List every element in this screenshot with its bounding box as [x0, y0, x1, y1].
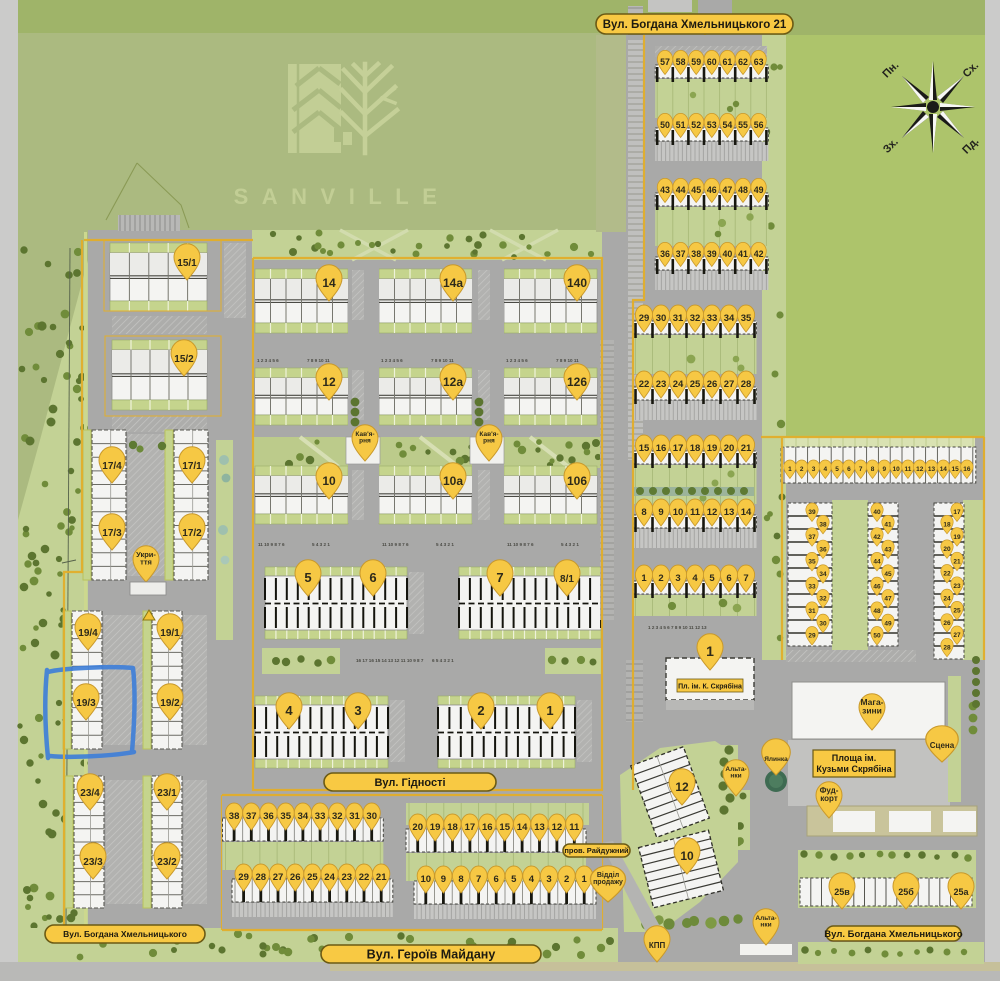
svg-text:51: 51: [676, 120, 686, 130]
svg-text:25: 25: [690, 379, 701, 390]
svg-text:46: 46: [873, 583, 881, 590]
svg-text:Вул. Богдана Хмельницького: Вул. Богдана Хмельницького: [824, 929, 963, 940]
svg-text:19: 19: [953, 534, 961, 541]
svg-text:36: 36: [660, 249, 670, 259]
svg-text:12: 12: [675, 780, 689, 794]
svg-text:140: 140: [567, 276, 587, 290]
svg-text:20: 20: [724, 443, 735, 454]
svg-text:37: 37: [246, 811, 257, 822]
svg-text:16 17 16 15 14 13 12 11 10 9 8: 16 17 16 15 14 13 12 11 10 9 8 7: [356, 658, 424, 663]
svg-text:23/3: 23/3: [83, 857, 103, 868]
svg-text:1 2 3 4 5 6: 1 2 3 4 5 6: [257, 358, 279, 363]
svg-text:14a: 14a: [443, 276, 463, 290]
svg-text:7: 7: [743, 573, 748, 584]
svg-text:18: 18: [447, 822, 458, 833]
svg-text:32: 32: [332, 811, 343, 822]
svg-text:9: 9: [882, 466, 886, 473]
svg-text:ття: ття: [140, 558, 152, 567]
svg-text:47: 47: [884, 596, 892, 603]
svg-text:17/3: 17/3: [102, 528, 122, 539]
svg-text:58: 58: [676, 57, 686, 67]
svg-text:корт: корт: [820, 794, 838, 803]
svg-text:41: 41: [738, 249, 748, 259]
svg-text:31: 31: [808, 608, 816, 615]
svg-text:17/4: 17/4: [102, 461, 122, 472]
svg-text:7: 7: [859, 466, 863, 473]
svg-text:Вул. Богдана Хмельницького 21: Вул. Богдана Хмельницького 21: [603, 19, 787, 31]
svg-text:42: 42: [873, 534, 881, 541]
svg-text:30: 30: [819, 620, 827, 627]
svg-text:2: 2: [800, 466, 804, 473]
svg-text:14: 14: [322, 276, 336, 290]
svg-text:5: 5: [709, 573, 715, 584]
svg-text:41: 41: [884, 522, 892, 529]
svg-text:50: 50: [660, 120, 670, 130]
svg-text:6 5 4 3 2 1: 6 5 4 3 2 1: [432, 658, 454, 663]
svg-text:нки: нки: [760, 922, 771, 929]
svg-text:15/2: 15/2: [174, 354, 194, 365]
svg-text:33: 33: [707, 313, 718, 324]
svg-text:37: 37: [676, 249, 686, 259]
svg-text:19/1: 19/1: [160, 628, 180, 639]
svg-text:31: 31: [349, 811, 360, 822]
svg-text:6: 6: [726, 573, 731, 584]
svg-text:31: 31: [673, 313, 684, 324]
svg-text:27: 27: [273, 872, 284, 883]
svg-text:25б: 25б: [898, 887, 914, 897]
svg-text:42: 42: [754, 249, 764, 259]
svg-text:60: 60: [707, 57, 717, 67]
svg-text:26: 26: [707, 379, 718, 390]
svg-text:28: 28: [256, 872, 267, 883]
svg-text:13: 13: [534, 822, 545, 833]
svg-text:53: 53: [707, 120, 717, 130]
svg-text:28: 28: [943, 645, 951, 652]
svg-text:2: 2: [564, 874, 569, 885]
svg-text:1 2 3 4 5 6 7 8 9 10 11 12 13: 1 2 3 4 5 6 7 8 9 10 11 12 13: [648, 625, 707, 630]
svg-text:36: 36: [819, 546, 827, 553]
svg-text:37: 37: [808, 534, 816, 541]
svg-text:9: 9: [658, 507, 663, 518]
svg-text:61: 61: [723, 57, 733, 67]
svg-text:18: 18: [943, 522, 951, 529]
svg-text:21: 21: [376, 872, 387, 883]
svg-text:Пл. ім. К. Скрябіна: Пл. ім. К. Скрябіна: [678, 683, 742, 691]
svg-text:23/4: 23/4: [80, 788, 100, 799]
svg-text:25: 25: [953, 608, 961, 615]
svg-text:12: 12: [707, 507, 718, 518]
svg-text:27: 27: [953, 632, 961, 639]
svg-text:40: 40: [873, 509, 881, 516]
svg-text:Вул. Героїв Майдану: Вул. Героїв Майдану: [367, 948, 496, 962]
svg-text:23: 23: [342, 872, 353, 883]
svg-text:3: 3: [675, 573, 680, 584]
svg-text:5 4 3 2 1: 5 4 3 2 1: [436, 542, 454, 547]
svg-text:3: 3: [546, 874, 551, 885]
svg-text:рня: рня: [359, 438, 371, 445]
svg-text:21: 21: [953, 558, 961, 565]
svg-text:45: 45: [884, 571, 892, 578]
svg-text:Відділ: Відділ: [597, 871, 619, 879]
svg-text:17: 17: [673, 443, 684, 454]
svg-text:17/2: 17/2: [182, 528, 202, 539]
svg-text:22: 22: [639, 379, 650, 390]
svg-text:20: 20: [943, 546, 951, 553]
svg-text:43: 43: [884, 546, 892, 553]
svg-text:4: 4: [529, 874, 535, 885]
svg-text:зини: зини: [862, 706, 882, 716]
svg-text:63: 63: [754, 57, 764, 67]
svg-text:10: 10: [892, 466, 900, 473]
svg-text:12: 12: [552, 822, 563, 833]
svg-text:Кузьми Скрябіна: Кузьми Скрябіна: [816, 764, 892, 774]
svg-text:59: 59: [691, 57, 701, 67]
svg-text:29: 29: [639, 313, 650, 324]
svg-text:44: 44: [676, 185, 686, 195]
svg-text:19/2: 19/2: [160, 698, 180, 709]
svg-text:5: 5: [835, 466, 839, 473]
svg-text:2: 2: [658, 573, 663, 584]
svg-text:Вул. Богдана Хмельницького: Вул. Богдана Хмельницького: [63, 929, 187, 939]
svg-text:6: 6: [369, 570, 376, 585]
svg-text:5: 5: [511, 874, 517, 885]
svg-text:7 8 9 10 11: 7 8 9 10 11: [307, 358, 330, 363]
svg-text:17: 17: [953, 509, 961, 516]
svg-text:5: 5: [304, 570, 311, 585]
svg-text:10: 10: [421, 874, 432, 885]
svg-text:23/1: 23/1: [157, 788, 177, 799]
svg-text:7 8 9 10 11: 7 8 9 10 11: [431, 358, 454, 363]
svg-text:35: 35: [741, 313, 752, 324]
svg-text:11 10 9 8 7 6: 11 10 9 8 7 6: [507, 542, 534, 547]
svg-text:45: 45: [691, 185, 701, 195]
svg-text:39: 39: [707, 249, 717, 259]
svg-text:36: 36: [263, 811, 274, 822]
svg-text:15: 15: [639, 443, 650, 454]
svg-text:14: 14: [940, 466, 948, 473]
svg-text:32: 32: [819, 596, 827, 603]
svg-text:106: 106: [567, 474, 587, 488]
svg-text:1 2 3 4 5 6: 1 2 3 4 5 6: [506, 358, 528, 363]
svg-text:33: 33: [808, 583, 816, 590]
svg-text:13: 13: [724, 507, 735, 518]
svg-text:11: 11: [904, 466, 911, 473]
svg-text:6: 6: [494, 874, 499, 885]
svg-text:38: 38: [819, 522, 827, 529]
svg-text:50: 50: [873, 633, 881, 640]
svg-text:16: 16: [482, 822, 493, 833]
svg-text:1: 1: [641, 573, 647, 584]
svg-text:43: 43: [660, 185, 670, 195]
svg-text:17/1: 17/1: [182, 461, 202, 472]
svg-text:57: 57: [660, 57, 670, 67]
svg-text:11: 11: [690, 507, 701, 518]
svg-text:52: 52: [691, 120, 701, 130]
svg-text:4: 4: [692, 573, 698, 584]
svg-text:8: 8: [641, 507, 646, 518]
svg-text:1: 1: [788, 466, 792, 473]
svg-text:126: 126: [567, 375, 587, 389]
svg-text:10: 10: [322, 474, 336, 488]
svg-text:14: 14: [741, 507, 752, 518]
svg-text:15/1: 15/1: [177, 258, 197, 269]
svg-text:17: 17: [465, 822, 476, 833]
svg-text:11: 11: [569, 822, 580, 833]
svg-text:11 10 9 8 7 6: 11 10 9 8 7 6: [258, 542, 285, 547]
svg-text:8: 8: [871, 466, 875, 473]
svg-text:19: 19: [707, 443, 718, 454]
svg-text:23: 23: [953, 583, 961, 590]
svg-text:38: 38: [691, 249, 701, 259]
svg-text:12: 12: [916, 466, 924, 473]
svg-text:19/3: 19/3: [76, 698, 96, 709]
svg-text:19/4: 19/4: [78, 628, 98, 639]
svg-text:24: 24: [943, 595, 951, 602]
svg-text:55: 55: [738, 120, 748, 130]
svg-text:10: 10: [673, 507, 684, 518]
svg-text:11 10 9 8 7 6: 11 10 9 8 7 6: [382, 542, 409, 547]
svg-text:40: 40: [723, 249, 733, 259]
svg-text:КПП: КПП: [649, 941, 666, 950]
svg-text:8/1: 8/1: [560, 574, 574, 585]
svg-text:1: 1: [706, 643, 714, 659]
svg-text:20: 20: [412, 822, 423, 833]
svg-text:26: 26: [290, 872, 301, 883]
svg-text:27: 27: [724, 379, 735, 390]
svg-text:пров. Райдужний: пров. Райдужний: [564, 846, 629, 855]
svg-text:10a: 10a: [443, 474, 463, 488]
svg-text:34: 34: [298, 811, 309, 822]
svg-text:7 8 9 10 11: 7 8 9 10 11: [556, 358, 579, 363]
svg-text:24: 24: [673, 379, 684, 390]
svg-text:3: 3: [812, 466, 816, 473]
svg-text:54: 54: [723, 120, 733, 130]
svg-text:25: 25: [307, 872, 318, 883]
svg-text:39: 39: [808, 509, 816, 516]
svg-text:49: 49: [884, 620, 892, 627]
svg-text:15: 15: [499, 822, 510, 833]
svg-text:30: 30: [656, 313, 667, 324]
svg-text:13: 13: [928, 466, 936, 473]
svg-text:47: 47: [723, 185, 733, 195]
svg-text:нки: нки: [730, 773, 741, 780]
svg-text:7: 7: [476, 874, 481, 885]
svg-text:16: 16: [963, 466, 971, 473]
svg-text:38: 38: [229, 811, 240, 822]
svg-text:7: 7: [496, 570, 503, 585]
svg-text:26: 26: [943, 620, 951, 627]
svg-text:9: 9: [441, 874, 446, 885]
svg-text:24: 24: [324, 872, 335, 883]
svg-text:Сцена: Сцена: [930, 741, 955, 750]
svg-text:28: 28: [741, 379, 752, 390]
svg-text:34: 34: [724, 313, 735, 324]
svg-text:22: 22: [359, 872, 370, 883]
svg-text:8: 8: [458, 874, 463, 885]
svg-text:Ялинка: Ялинка: [764, 756, 788, 763]
svg-text:44: 44: [873, 559, 881, 566]
svg-text:21: 21: [741, 443, 752, 454]
svg-text:3: 3: [354, 703, 361, 718]
svg-text:1 2 3 4 5 6: 1 2 3 4 5 6: [381, 358, 403, 363]
svg-text:4: 4: [285, 703, 293, 718]
svg-text:34: 34: [819, 571, 827, 578]
svg-text:4: 4: [823, 466, 827, 473]
svg-text:35: 35: [808, 559, 816, 566]
svg-text:5 4 3 2 1: 5 4 3 2 1: [312, 542, 330, 547]
svg-text:48: 48: [738, 185, 748, 195]
svg-text:29: 29: [808, 633, 816, 640]
svg-text:23/2: 23/2: [157, 857, 177, 868]
svg-text:49: 49: [754, 185, 764, 195]
svg-text:19: 19: [430, 822, 441, 833]
svg-text:22: 22: [943, 571, 951, 578]
svg-text:SANVILLE: SANVILLE: [234, 184, 451, 209]
svg-text:46: 46: [707, 185, 717, 195]
svg-text:32: 32: [690, 313, 701, 324]
svg-text:35: 35: [280, 811, 291, 822]
svg-text:15: 15: [951, 466, 959, 473]
svg-text:16: 16: [656, 443, 667, 454]
svg-text:10: 10: [680, 849, 694, 863]
svg-text:18: 18: [690, 443, 701, 454]
svg-text:1: 1: [582, 874, 588, 885]
svg-text:25в: 25в: [834, 887, 850, 897]
svg-text:25а: 25а: [953, 887, 969, 897]
svg-text:56: 56: [754, 120, 764, 130]
svg-text:12: 12: [322, 375, 336, 389]
svg-text:рня: рня: [483, 438, 495, 445]
svg-text:23: 23: [656, 379, 667, 390]
svg-text:30: 30: [366, 811, 377, 822]
svg-text:1: 1: [546, 703, 553, 718]
svg-text:29: 29: [238, 872, 249, 883]
svg-text:12a: 12a: [443, 375, 463, 389]
svg-text:48: 48: [873, 608, 881, 615]
svg-text:2: 2: [477, 703, 484, 718]
svg-text:14: 14: [517, 822, 528, 833]
svg-text:6: 6: [847, 466, 851, 473]
svg-text:62: 62: [738, 57, 748, 67]
svg-text:Вул. Гідності: Вул. Гідності: [374, 777, 445, 789]
svg-text:5 4 3 2 1: 5 4 3 2 1: [561, 542, 579, 547]
svg-text:Площа ім.: Площа ім.: [832, 753, 876, 763]
svg-text:продажу: продажу: [593, 879, 623, 886]
svg-text:33: 33: [315, 811, 326, 822]
